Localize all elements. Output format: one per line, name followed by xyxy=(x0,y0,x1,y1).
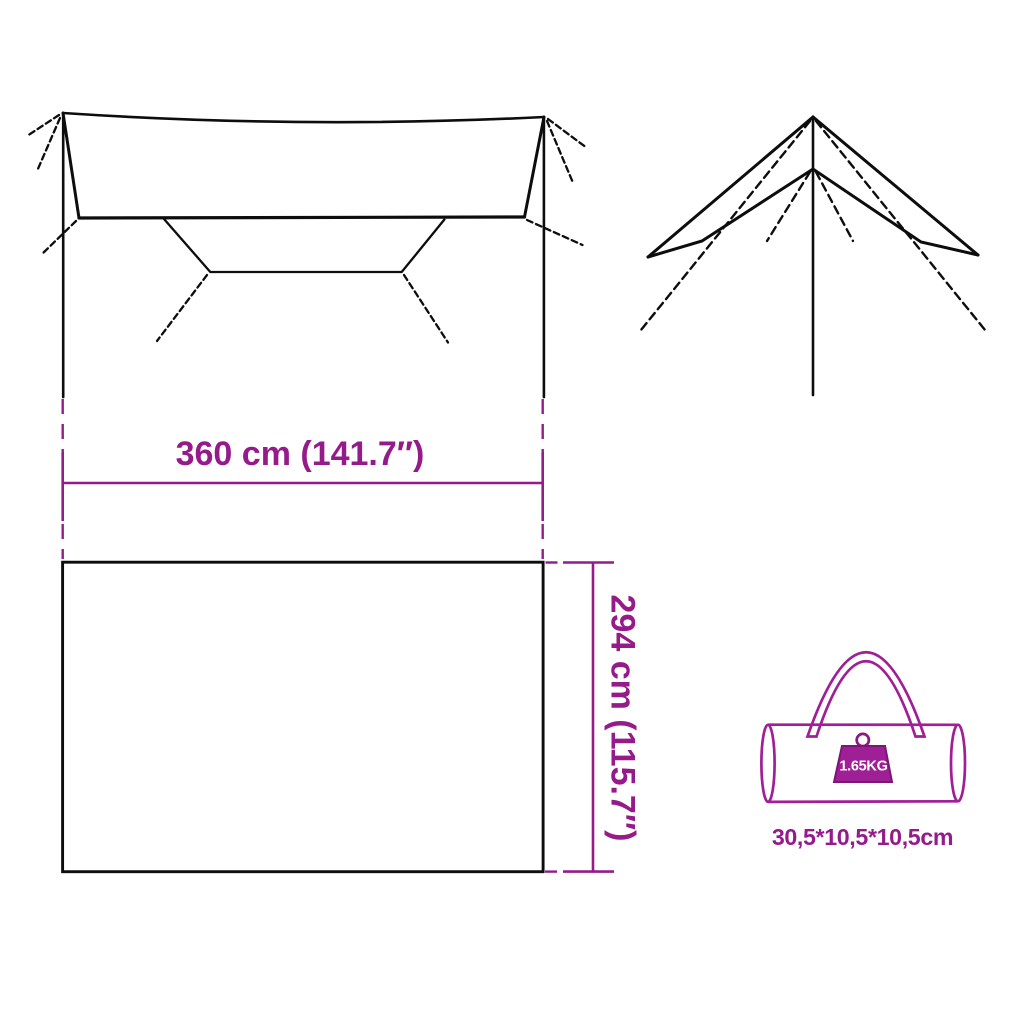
svg-text:1.65KG: 1.65KG xyxy=(839,759,887,775)
svg-text:294 cm (115.7″): 294 cm (115.7″) xyxy=(604,595,642,842)
svg-text:360 cm (141.7″): 360 cm (141.7″) xyxy=(176,435,425,473)
svg-text:30,5*10,5*10,5cm: 30,5*10,5*10,5cm xyxy=(772,824,953,850)
